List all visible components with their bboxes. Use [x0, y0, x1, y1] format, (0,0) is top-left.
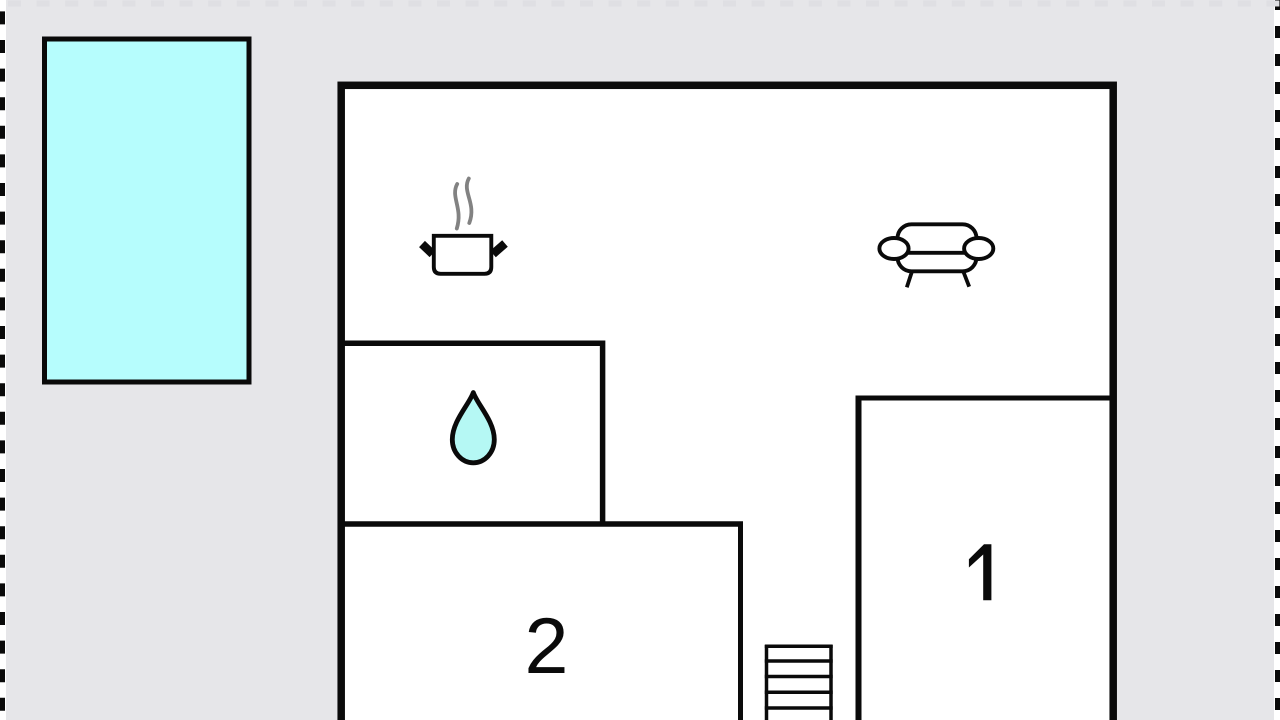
- svg-text:2: 2: [525, 601, 569, 690]
